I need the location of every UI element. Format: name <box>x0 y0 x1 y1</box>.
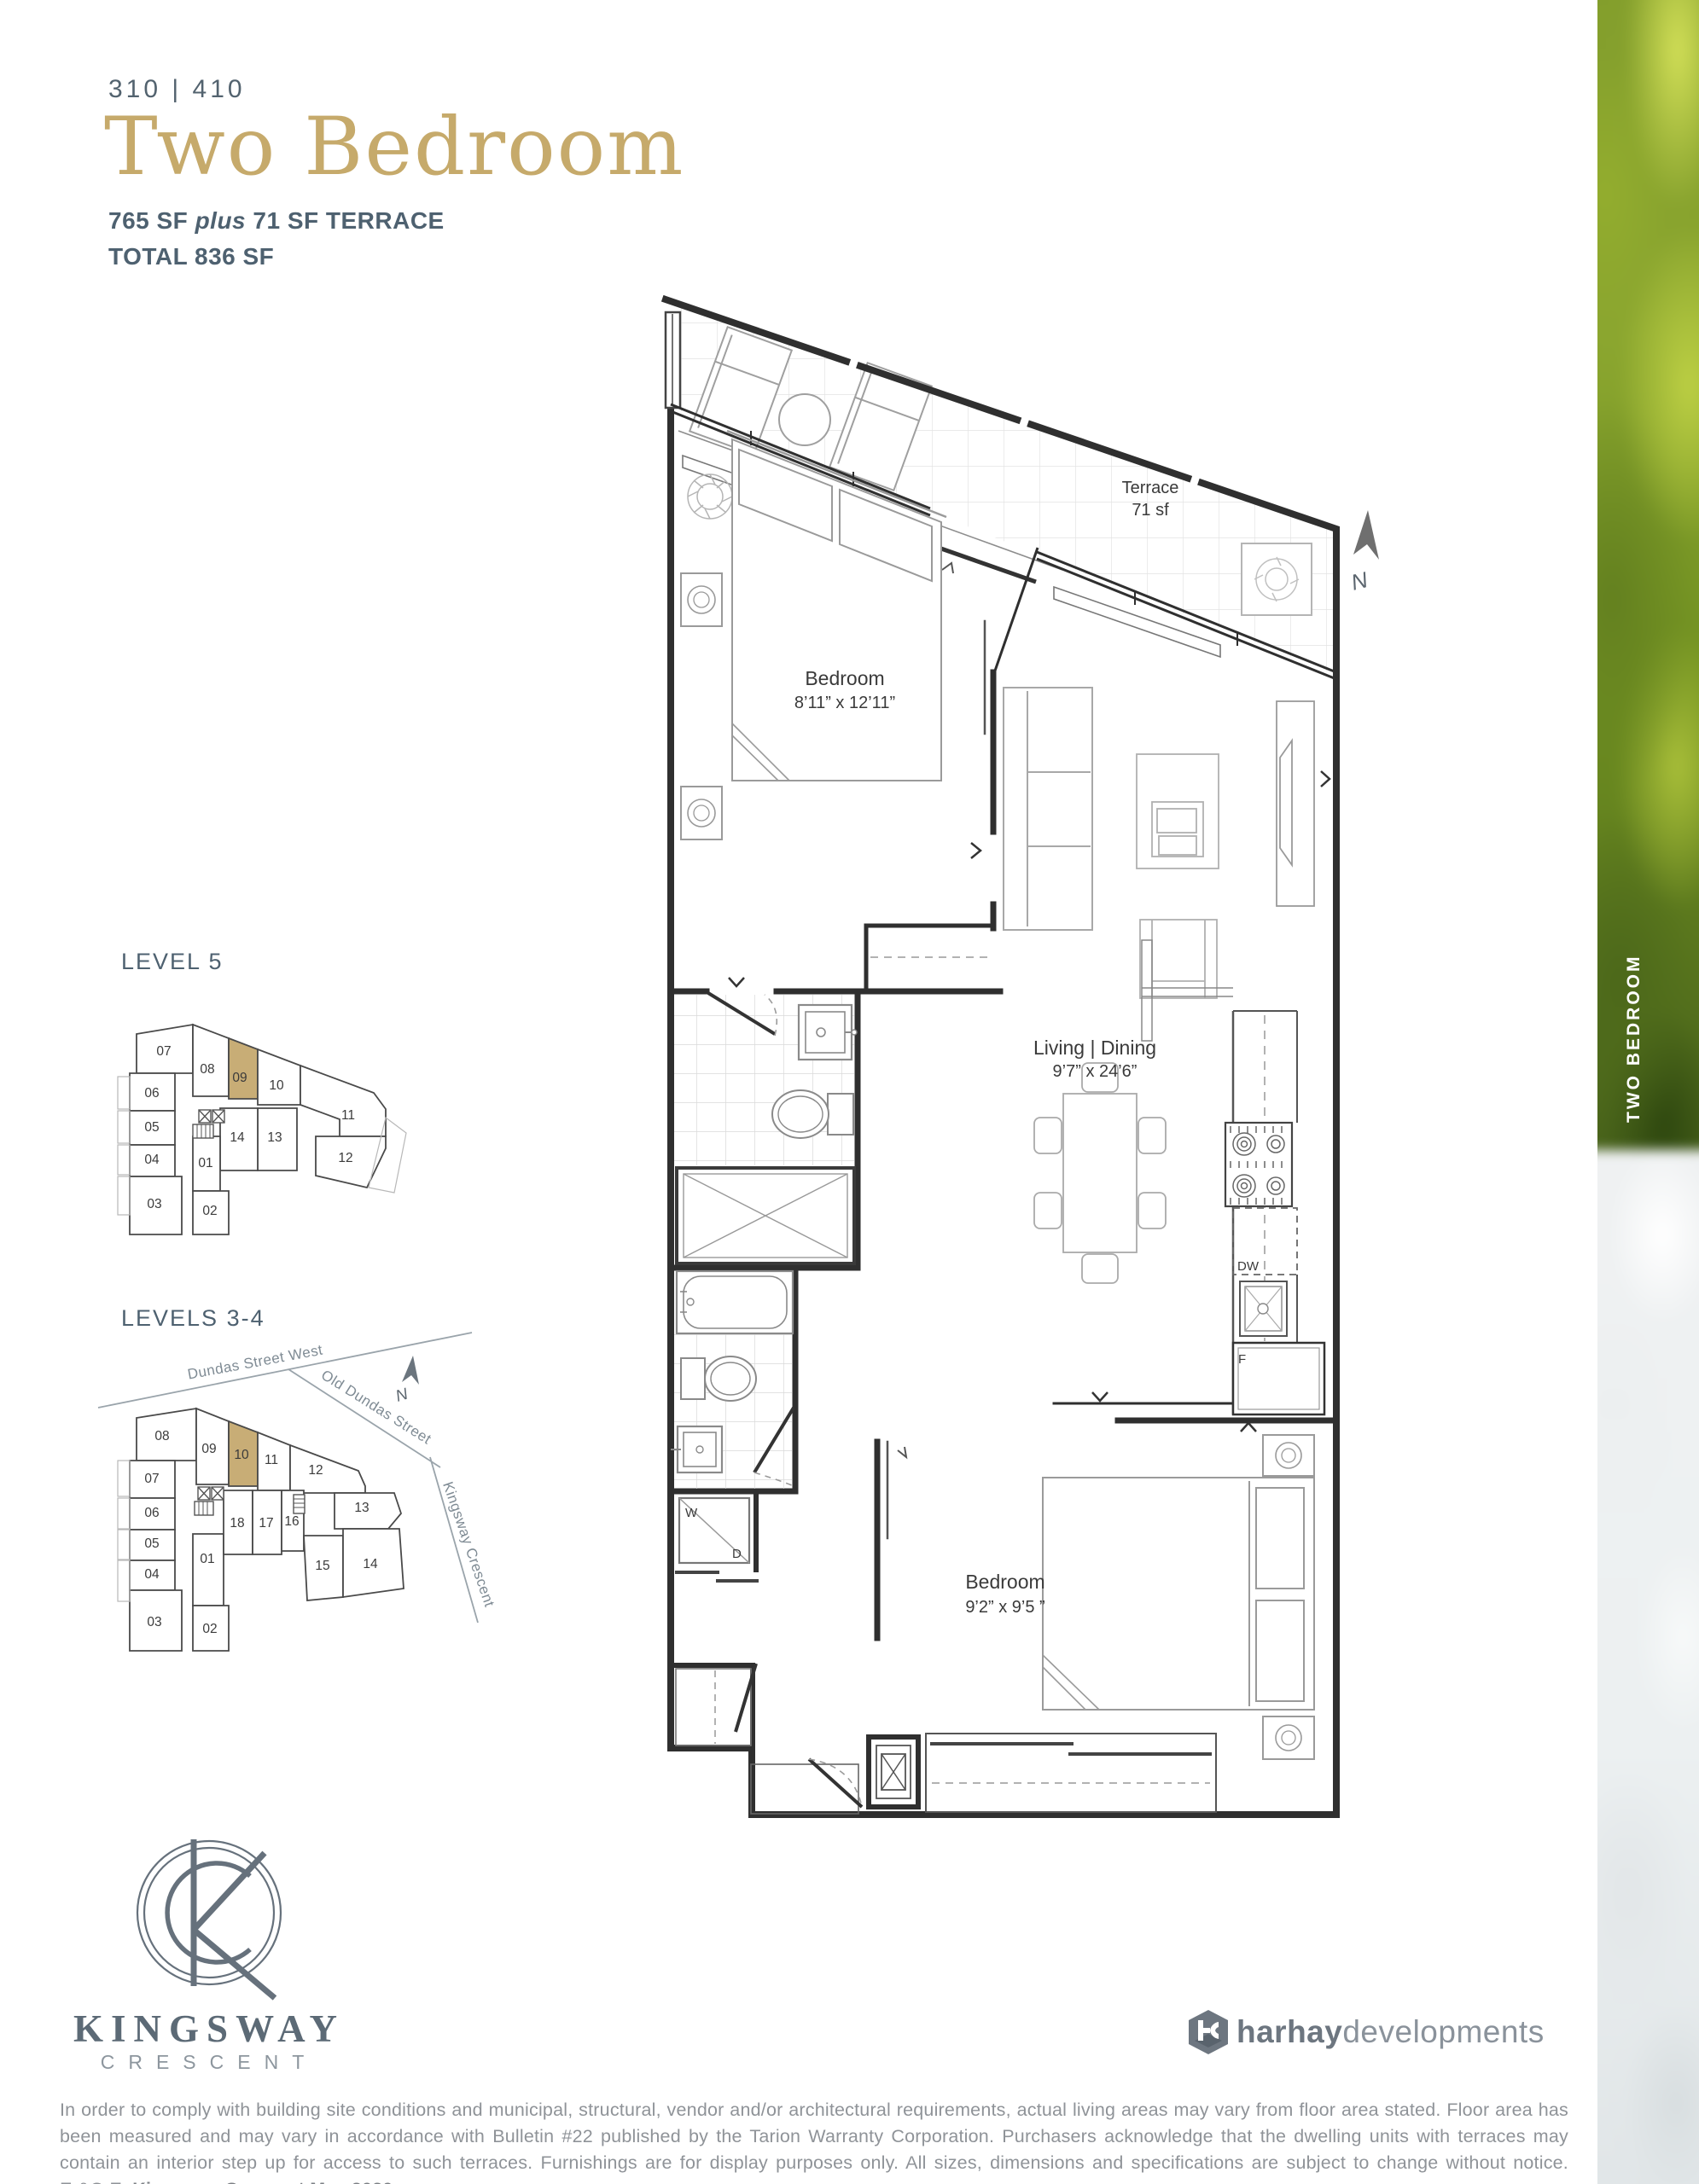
sink <box>671 1426 722 1472</box>
kingsway-logo-name: KINGSWAY <box>38 2007 380 2051</box>
keyplan-unit-09: 09 <box>201 1442 216 1456</box>
keyplan-unit-03: 03 <box>147 1197 161 1211</box>
window <box>666 312 680 408</box>
keyplan-unit-13: 13 <box>354 1501 369 1515</box>
keyplan-unit-06: 06 <box>144 1506 159 1520</box>
bedroom1-label: Bedroom <box>805 667 884 689</box>
keyplan-levels34: Dundas Street West Old Dundas Street Kin… <box>98 1333 497 1651</box>
harhay-icon <box>1188 2010 1229 2054</box>
north-label: N <box>1348 566 1370 595</box>
keyplan-unit-16: 16 <box>284 1514 299 1529</box>
keyplan-unit-13: 13 <box>267 1130 282 1145</box>
kitchen-sink <box>1240 1281 1287 1336</box>
washer-label: W <box>685 1506 698 1520</box>
bedroom2-label: Bedroom <box>965 1571 1044 1593</box>
dishwasher-label: DW <box>1237 1259 1260 1274</box>
floorplan-page: 310 | 410 Two Bedroom 765 SF plus 71 SF … <box>0 0 1699 2184</box>
laundry-closet: W D <box>675 1498 759 1581</box>
kingsway-logo-monogram <box>137 1839 281 1998</box>
keyplan-unit-02: 02 <box>202 1622 217 1636</box>
bathtub <box>677 1271 793 1333</box>
keyplan-unit-09: 09 <box>232 1071 247 1085</box>
bedroom2-dims: 9’2” x 9’5 ” <box>965 1598 1044 1617</box>
toilet <box>681 1356 756 1401</box>
developer-logo: harhaydevelopments <box>1188 2010 1545 2054</box>
terrace-door <box>939 548 1036 582</box>
sofa <box>1004 688 1092 930</box>
sink <box>799 1005 857 1060</box>
living-dims: 9’7” x 24’6” <box>1053 1062 1138 1081</box>
nightstand <box>1263 1716 1314 1759</box>
stove <box>1225 1123 1292 1206</box>
highlighted-unit-09 <box>229 1038 258 1099</box>
entry-door <box>809 1759 862 1807</box>
keyplan-unit-08: 08 <box>200 1062 214 1077</box>
keyplan-unit-18: 18 <box>230 1516 244 1531</box>
shower <box>677 1168 854 1263</box>
tv-console <box>1277 701 1314 906</box>
nightstand <box>681 573 722 626</box>
keyplan-unit-11: 11 <box>341 1108 355 1123</box>
bathroom-ensuite <box>674 978 857 1263</box>
bedroom2: Bedroom 9’2” x 9’5 ” <box>898 1392 1314 1812</box>
keyplan-unit-06: 06 <box>144 1086 159 1101</box>
plan-drawing: Terrace 71 sf <box>0 0 1699 2184</box>
keyplan-unit-14: 14 <box>363 1557 378 1571</box>
shaft <box>869 1737 918 1807</box>
keyplan-level5: 0708091011060514130401120302 <box>118 1025 406 1234</box>
planter-box <box>1242 543 1312 615</box>
keyplan-unit-10: 10 <box>269 1078 284 1093</box>
disclaimer-credit: Kingsway Crescent May 2020 <box>132 2179 393 2184</box>
disclaimer: In order to comply with building site co… <box>60 2097 1568 2184</box>
kingsway-logo-sub: CRESCENT <box>38 2051 380 2074</box>
plant <box>688 474 732 519</box>
nightstand <box>681 787 722 839</box>
dryer-label: D <box>732 1547 742 1561</box>
keyplan-unit-14: 14 <box>230 1130 245 1145</box>
keyplan-unit-03: 03 <box>147 1615 161 1629</box>
keyplan-unit-04: 04 <box>144 1567 160 1582</box>
keyplan-unit-12: 12 <box>308 1463 323 1478</box>
disclaimer-text: In order to comply with building site co… <box>60 2100 1568 2184</box>
keyplan-unit-01: 01 <box>198 1156 212 1170</box>
keyplan-unit-02: 02 <box>202 1204 217 1218</box>
keyplan-unit-07: 07 <box>156 1044 171 1059</box>
keyplan-unit-11: 11 <box>265 1453 278 1467</box>
nightstand <box>1263 1435 1314 1476</box>
terrace-area-label: 71 sf <box>1132 501 1169 520</box>
keyplan-north-arrow: N <box>393 1356 419 1406</box>
keyplan-unit-17: 17 <box>259 1516 273 1531</box>
svg-text:N: N <box>393 1385 410 1406</box>
keyplan-unit-15: 15 <box>315 1559 329 1573</box>
keyplan-unit-01: 01 <box>200 1552 214 1566</box>
terrace-label: Terrace <box>1122 479 1179 497</box>
entry-area <box>676 1664 862 1814</box>
living-label: Living | Dining <box>1033 1037 1156 1059</box>
keyplan-unit-04: 04 <box>144 1153 160 1167</box>
bathroom-main <box>671 1271 794 1489</box>
keyplan-unit-05: 05 <box>144 1120 159 1135</box>
keyplan-unit-10: 10 <box>234 1448 249 1462</box>
fridge-label: F <box>1238 1352 1246 1367</box>
terrace-table <box>779 394 830 445</box>
kitchen: DW F <box>1142 940 1324 1414</box>
keyplan-unit-05: 05 <box>144 1536 159 1551</box>
closet <box>926 1734 1216 1812</box>
harhay-regular: developments <box>1342 2014 1544 2050</box>
keyplan-unit-08: 08 <box>154 1429 169 1443</box>
north-arrow: N <box>1348 510 1379 595</box>
toilet <box>772 1090 853 1138</box>
dining-set <box>1034 1063 1166 1283</box>
coffee-table <box>1137 754 1219 868</box>
bedroom1-dims: 8’11” x 12’11” <box>794 694 895 712</box>
fridge <box>1233 1343 1324 1414</box>
bed <box>1043 1478 1314 1710</box>
keyplan-unit-07: 07 <box>144 1472 159 1486</box>
keyplan-unit-12: 12 <box>338 1151 352 1165</box>
harhay-bold: harhay <box>1236 2014 1342 2050</box>
